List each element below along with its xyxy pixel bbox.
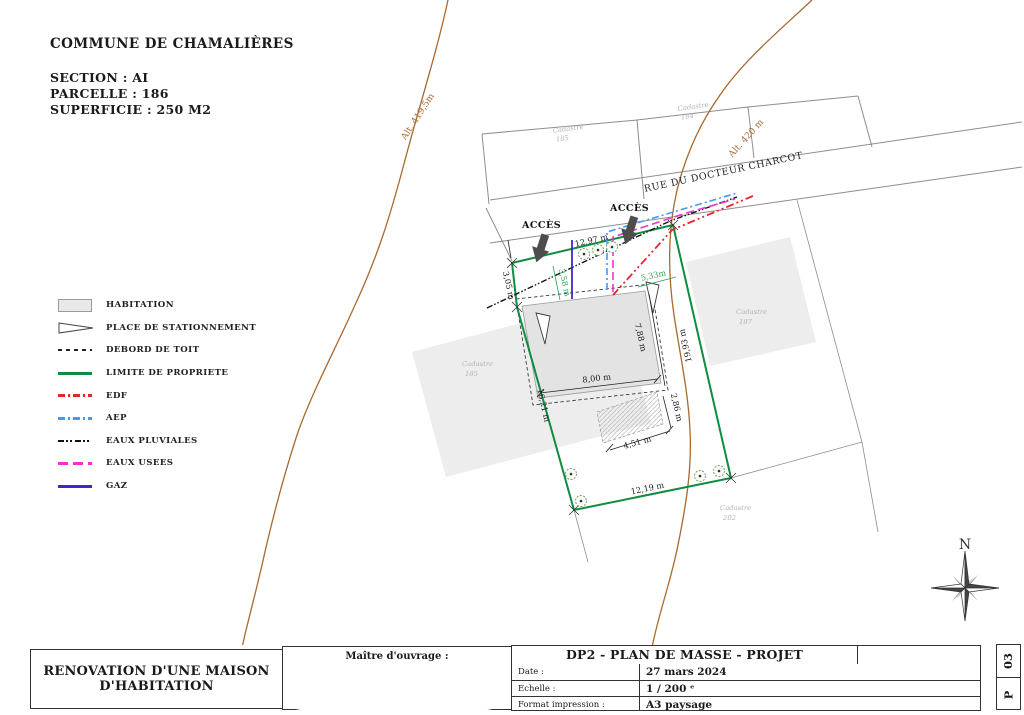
svg-text:12,19 m: 12,19 m [630, 480, 665, 497]
svg-text:Cadastre: Cadastre [462, 360, 493, 368]
format-row: Format impression : A3 paysage [512, 697, 980, 710]
project-title-line1: RENOVATION D'UNE MAISON [43, 664, 269, 679]
svg-text:ACCÈS: ACCÈS [609, 202, 649, 214]
svg-text:202: 202 [722, 514, 736, 522]
svg-text:3,58 m: 3,58 m [557, 268, 572, 298]
svg-text:12,97 m: 12,97 m [574, 231, 609, 248]
sheet-letter: P [997, 678, 1020, 711]
svg-text:2,86 m: 2,86 m [669, 392, 685, 422]
date-row: Date : 27 mars 2024 [512, 664, 980, 681]
street-name-label: RUE DU DOCTEUR CHARCOT [643, 150, 804, 194]
svg-text:Cadastre: Cadastre [720, 504, 751, 512]
sheet-number: 03 [997, 645, 1020, 678]
svg-text:185: 185 [465, 370, 478, 378]
site-plan-sheet: COMMUNE DE CHAMALIÈRES SECTION : AI PARC… [0, 0, 1024, 715]
access-arrow-icon [617, 214, 643, 247]
access-2: ACCÈS [609, 202, 649, 247]
access-1: ACCÈS [521, 219, 561, 265]
scale-row: Echelle : 1 / 200 ᵉ [512, 681, 980, 697]
svg-text:N: N [959, 537, 971, 553]
alt-right-label: Alt. 420 m [726, 117, 766, 160]
svg-text:Cadastre: Cadastre [736, 308, 767, 316]
svg-text:4,51 m: 4,51 m [622, 433, 652, 451]
svg-text:19,93 m: 19,93 m [676, 328, 693, 363]
plan-drawing: Alt. 419,5m Alt. 420 m RUE DU DOCTEUR CH… [0, 0, 1024, 645]
alt-left-label: Alt. 419,5m [399, 92, 437, 143]
svg-text:ACCÈS: ACCÈS [521, 219, 561, 231]
redaction-blur-overlay [298, 699, 490, 715]
project-title-box: RENOVATION D'UNE MAISON D'HABITATION [30, 649, 283, 709]
doc-title: DP2 - PLAN DE MASSE - PROJET [512, 646, 858, 664]
svg-text:184: 184 [680, 112, 694, 122]
maitre-douvrage-label: Maître d'ouvrage : [283, 651, 511, 662]
svg-text:3,05 m: 3,05 m [501, 270, 517, 300]
project-title-line2: D'HABITATION [99, 679, 213, 694]
svg-text:185: 185 [555, 134, 569, 144]
svg-text:187: 187 [739, 318, 753, 326]
compass-rose-icon: N [931, 537, 999, 621]
drawing-info-table: DP2 - PLAN DE MASSE - PROJET Date : 27 m… [511, 645, 981, 711]
sheet-number-box: 03 P [996, 644, 1021, 710]
